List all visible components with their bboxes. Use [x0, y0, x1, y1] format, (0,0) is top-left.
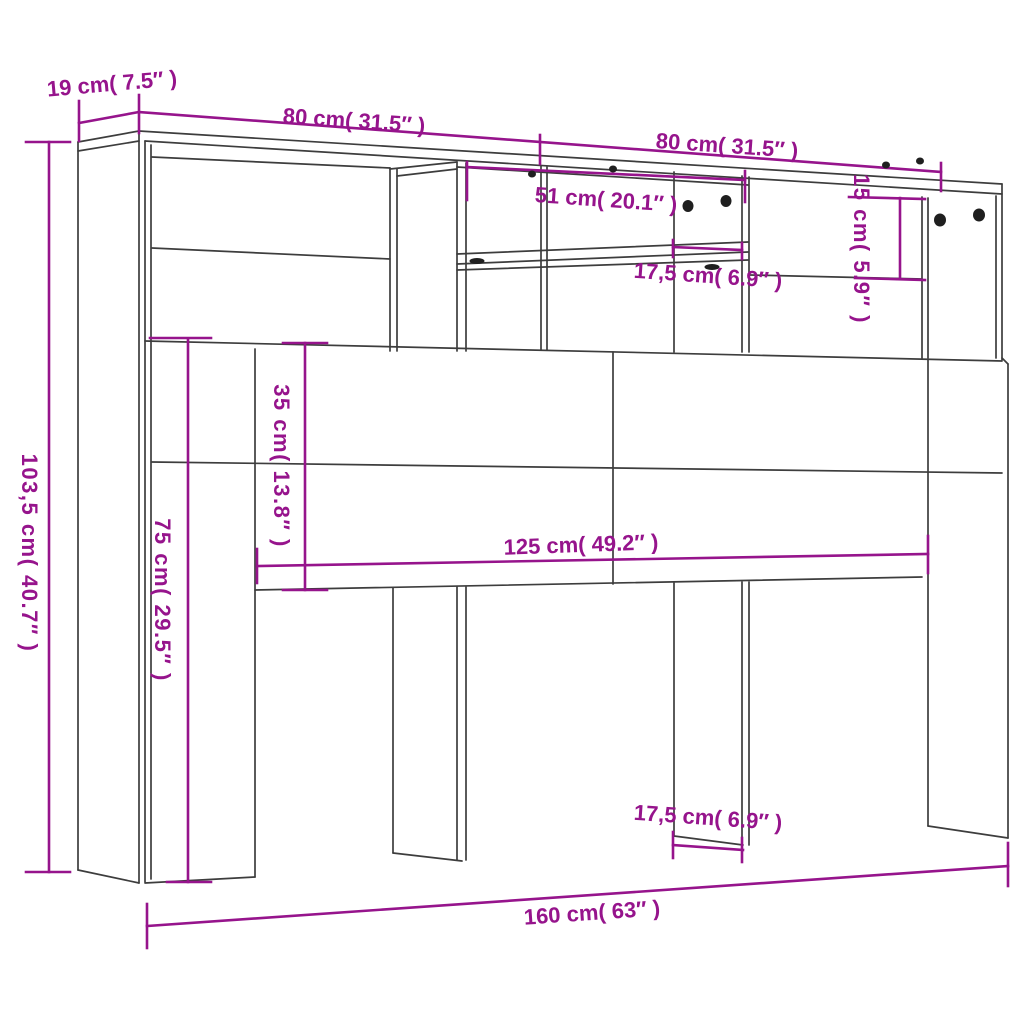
knob-icon	[973, 209, 985, 222]
dimension-label-total-height: 103,5 cm( 40.7″ )	[18, 454, 40, 653]
hinge-icon	[882, 162, 890, 169]
shelf-handle-icon	[470, 258, 485, 264]
dimension-label-leg-height: 75 cm( 29.5″ )	[151, 518, 173, 682]
left-side-panel	[78, 131, 145, 883]
knob-icon	[721, 195, 732, 207]
diagram-canvas: 19 cm( 7.5″ ) 80 cm( 31.5″ ) 80 cm( 31.5…	[0, 0, 1024, 1024]
knob-icon	[683, 200, 694, 212]
dimension-label-panel-height: 35 cm( 13.8″ )	[270, 384, 292, 548]
hinge-icon	[609, 166, 617, 173]
dimension-label-right-compartment-height: 15 cm( 5.9″ )	[850, 174, 872, 324]
knob-icon	[934, 214, 946, 227]
dimension-label-panel-width: 125 cm( 49.2″ )	[503, 531, 659, 558]
hinge-icon	[916, 158, 924, 165]
hinge-icon	[528, 171, 536, 178]
headboard-line-drawing	[0, 0, 1024, 1024]
